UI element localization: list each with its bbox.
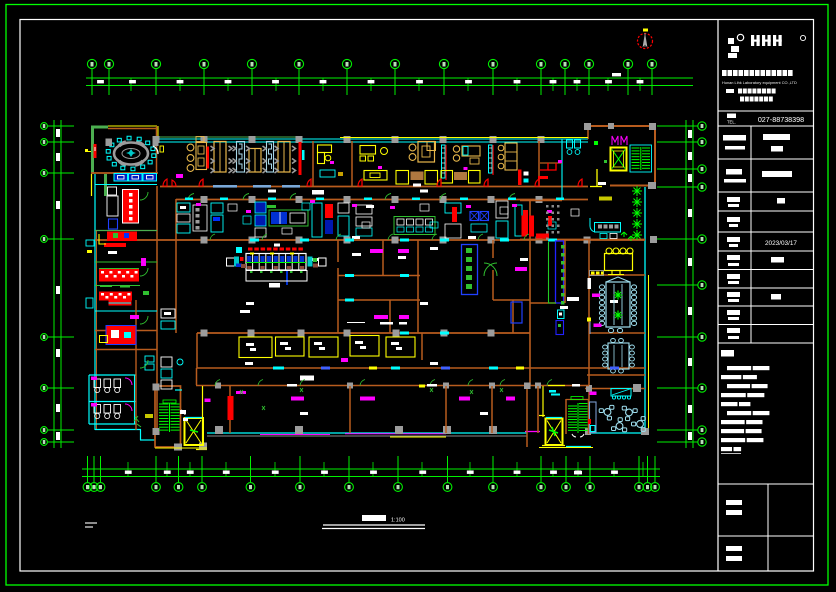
svg-text:TEL.: TEL. — [727, 120, 736, 125]
svg-text:1:100: 1:100 — [391, 518, 405, 524]
svg-text:Hunan Lihk Laboratory equipmen: Hunan Lihk Laboratory equipment CO.,LTD — [722, 80, 797, 85]
svg-text:2023/03/17: 2023/03/17 — [765, 240, 797, 247]
svg-text:027-88738398: 027-88738398 — [758, 115, 804, 124]
